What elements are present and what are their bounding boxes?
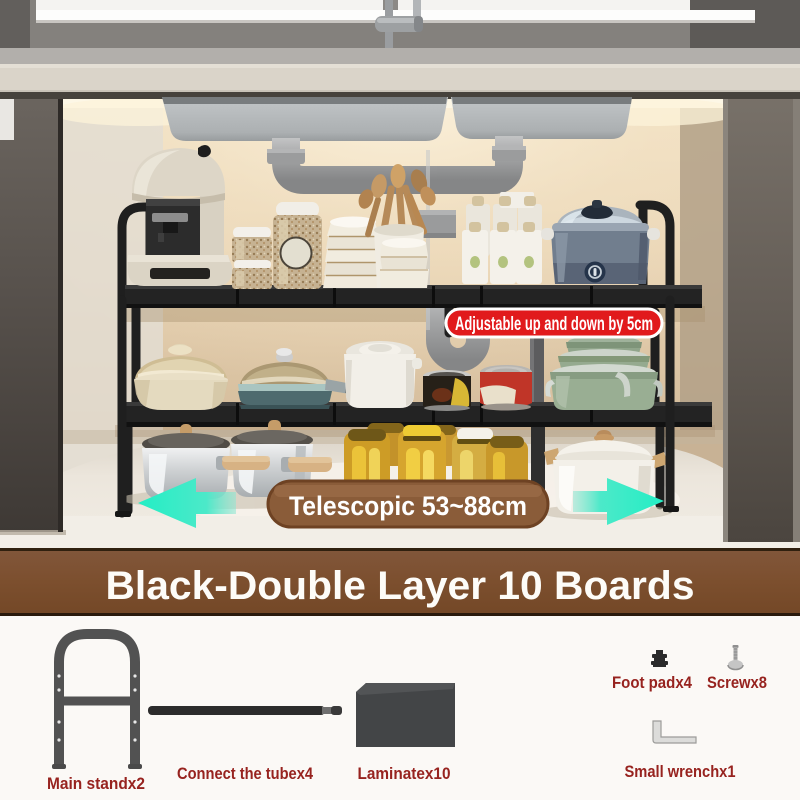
- svg-text:Telescopic 53~88cm: Telescopic 53~88cm: [289, 491, 527, 521]
- svg-text:Adjustable up and down by 5cm: Adjustable up and down by 5cm: [455, 314, 653, 335]
- svg-text:Laminatex10: Laminatex10: [358, 764, 451, 783]
- svg-text:Connect the tubex4: Connect the tubex4: [177, 764, 313, 783]
- svg-text:Main standx2: Main standx2: [47, 774, 145, 793]
- svg-text:Screwx8: Screwx8: [707, 673, 767, 692]
- svg-text:Small wrenchx1: Small wrenchx1: [625, 762, 736, 781]
- svg-text:Black-Double Layer 10 Boards: Black-Double Layer 10 Boards: [106, 564, 695, 608]
- svg-text:Foot padx4: Foot padx4: [612, 673, 692, 692]
